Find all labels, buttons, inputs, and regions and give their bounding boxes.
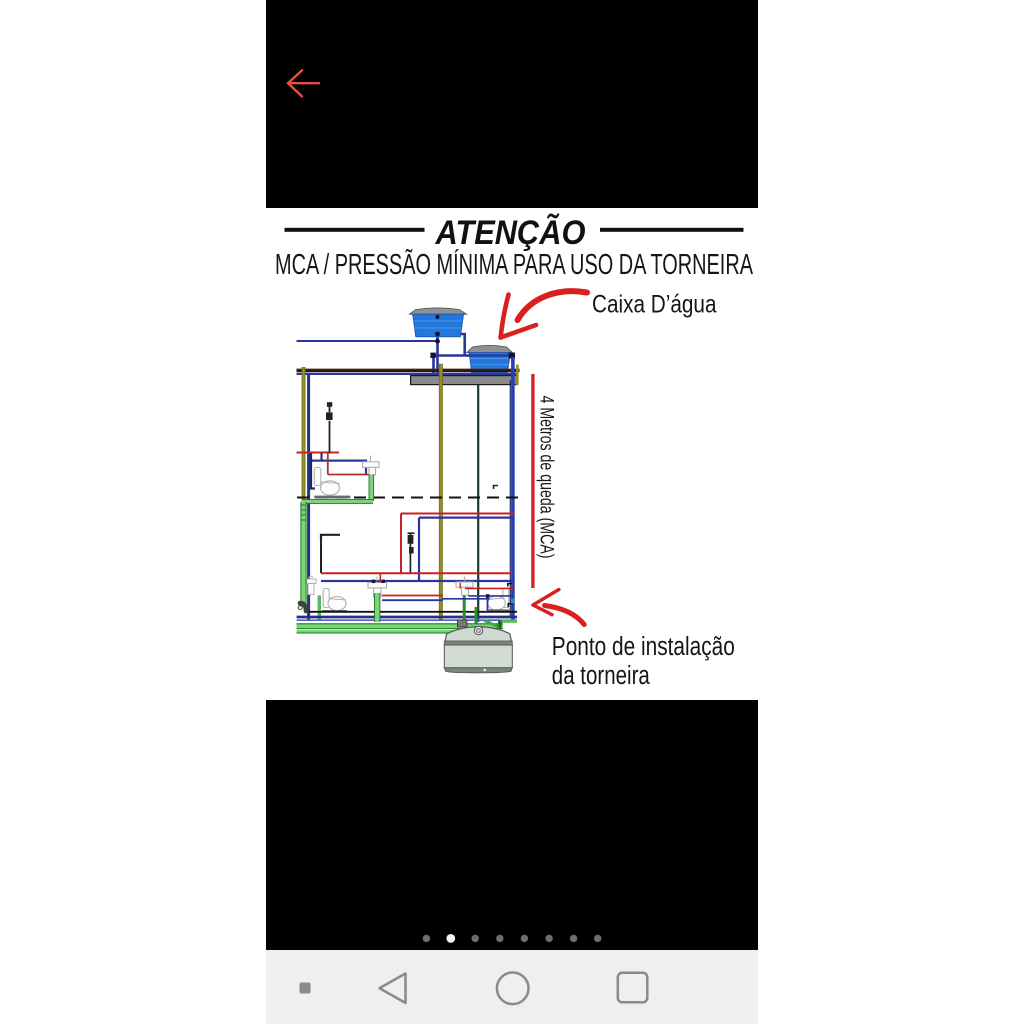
svg-text:Caixa D’água: Caixa D’água — [592, 290, 717, 318]
svg-text:4 Metros de queda (MCA): 4 Metros de queda (MCA) — [536, 396, 558, 559]
svg-text:Ponto de instalação: Ponto de instalação — [552, 633, 735, 661]
svg-text:ATENÇÃO: ATENÇÃO — [435, 214, 586, 252]
svg-text:MCA / PRESSÃO MÍNIMA PARA USO: MCA / PRESSÃO MÍNIMA PARA USO DA TORNEIR… — [275, 249, 753, 281]
svg-text:da torneira: da torneira — [552, 662, 651, 690]
